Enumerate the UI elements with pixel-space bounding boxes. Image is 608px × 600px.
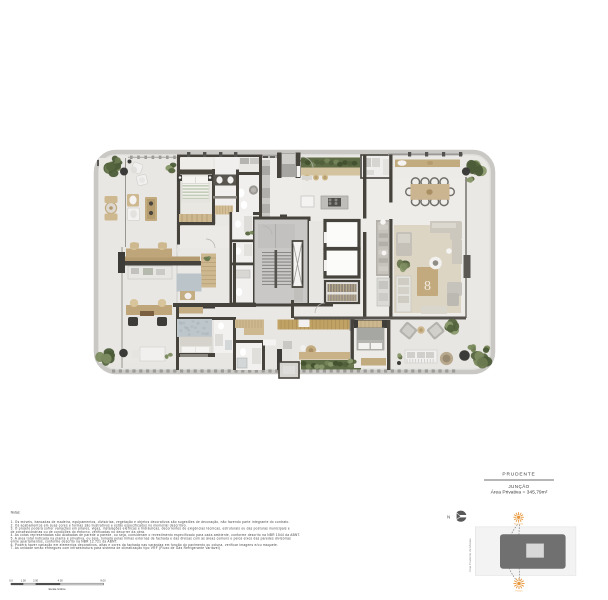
svg-text:4.00: 4.00: [58, 578, 64, 582]
svg-text:0.0: 0.0: [9, 578, 13, 582]
svg-text:PRUDENTE: PRUDENTE: [502, 472, 535, 478]
svg-text:7. As unidade serão entregues: 7. As unidade serão entregues com infrae…: [11, 546, 220, 550]
svg-text:Notas:: Notas:: [11, 511, 21, 515]
svg-text:JUNÇÃO: JUNÇÃO: [508, 483, 529, 489]
svg-text:8.00: 8.00: [100, 578, 106, 582]
svg-text:2.00: 2.00: [33, 578, 39, 582]
svg-text:Área Privativa = 345,79m²: Área Privativa = 345,79m²: [491, 488, 548, 495]
svg-text:8: 8: [424, 279, 431, 294]
svg-text:Escala Gráfica: Escala Gráfica: [49, 587, 66, 591]
svg-text:Nascente: Nascente: [514, 523, 524, 526]
svg-text:Rua Prudente de Morais: Rua Prudente de Morais: [468, 538, 472, 572]
svg-text:N: N: [447, 514, 450, 519]
svg-text:Poente: Poente: [516, 589, 524, 592]
svg-text:1.00: 1.00: [21, 578, 27, 582]
